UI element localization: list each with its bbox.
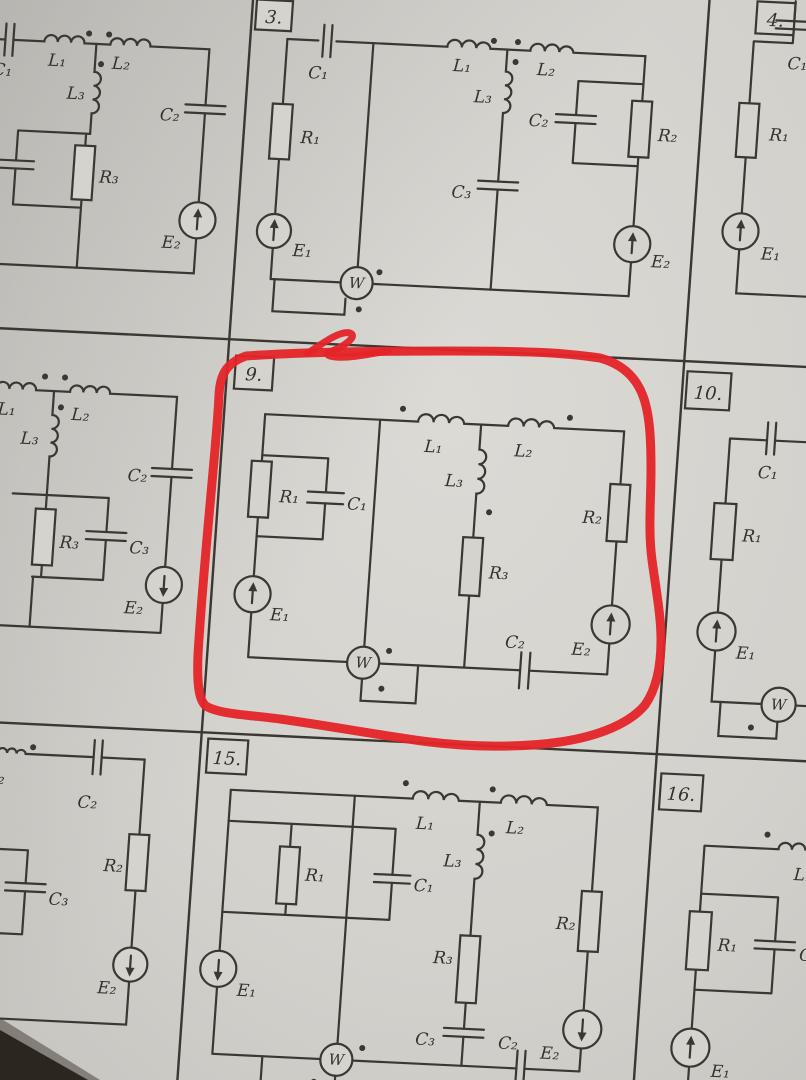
label-c2: C₂ — [159, 105, 180, 126]
source-e1 — [199, 950, 238, 988]
label-l1: L₁ — [451, 56, 471, 77]
source-e2 — [145, 566, 184, 604]
label-l3: L₃ — [443, 471, 464, 492]
label-e2: E₂ — [122, 598, 144, 619]
resistor-r1 — [686, 911, 712, 970]
label-c2: C₂ — [497, 1033, 518, 1054]
label-r3: R₃ — [487, 563, 509, 584]
label-r1: R₁ — [741, 526, 763, 547]
label-l2: L₂ — [504, 818, 525, 839]
source-e2 — [112, 947, 148, 983]
cell-number: 10. — [693, 383, 723, 405]
cell-number: 16. — [666, 784, 696, 806]
label-r3: R₃ — [431, 948, 453, 969]
label-l3: L₃ — [19, 429, 40, 450]
resistor-r2 — [628, 101, 652, 158]
label-c3: C₃ — [48, 889, 69, 910]
label-c1: C₁ — [798, 946, 806, 967]
label-e2: E₂ — [570, 640, 592, 661]
label-c2: C₂ — [127, 466, 148, 487]
resistor-r2 — [578, 891, 602, 952]
wattmeter-letter: W — [355, 653, 373, 672]
resistor-r1 — [276, 846, 300, 904]
wattmeter-letter: W — [348, 274, 366, 293]
label-l1: L₁ — [414, 814, 434, 835]
label-r2: R₂ — [554, 914, 576, 935]
label-e2: E₂ — [539, 1043, 561, 1064]
source-e2 — [178, 201, 217, 239]
resistor-r1 — [269, 104, 293, 160]
label-c1: C₁ — [413, 876, 434, 897]
resistor-r1 — [736, 103, 760, 158]
label-e1: E₁ — [734, 644, 756, 665]
label-r3: R₃ — [97, 167, 119, 188]
label-c3: C₃ — [415, 1030, 436, 1051]
label-e1: E₁ — [759, 244, 781, 265]
label-l1: L₁ — [46, 51, 66, 72]
label-e1: E₁ — [268, 605, 290, 626]
cell-number: 9. — [245, 364, 264, 386]
resistor-r3 — [459, 537, 483, 596]
cell-number: 15. — [212, 748, 242, 770]
label-c2: C₂ — [528, 111, 549, 132]
label-r1: R₁ — [716, 936, 738, 957]
resistor-r1 — [248, 461, 272, 518]
label-r1: R₁ — [278, 487, 300, 508]
label-l2: L₂ — [70, 405, 91, 426]
label-c1: C₁ — [346, 494, 367, 515]
label-r2: R₂ — [581, 508, 603, 529]
label-e1: E₁ — [291, 241, 313, 262]
label-c1: C₁ — [0, 60, 13, 81]
resistor-r2 — [125, 834, 149, 891]
label-r1: R₁ — [303, 866, 325, 887]
label-l1: L₁ — [792, 865, 806, 886]
cell-number: 3. — [265, 7, 284, 29]
label-r1: R₁ — [768, 125, 790, 146]
label-r2: R₂ — [102, 856, 124, 877]
label-l2: L₂ — [513, 441, 534, 462]
label-c3: C₃ — [129, 538, 150, 559]
resistor-r1 — [711, 503, 737, 560]
label-c1: C₁ — [787, 54, 806, 75]
label-l1: L₁ — [423, 437, 443, 458]
label-l3: L₃ — [472, 87, 493, 108]
label-e1: E₁ — [235, 981, 257, 1002]
resistor-r3 — [456, 935, 481, 1003]
label-e1: E₁ — [709, 1062, 731, 1080]
source-e1 — [256, 213, 292, 249]
wattmeter-letter: W — [328, 1050, 346, 1069]
label-e2: E₂ — [649, 252, 671, 273]
label-r1: R₁ — [299, 128, 321, 149]
photographed-worksheet: C₁ L₁ L₂ L₃ R₃ C₃ C₂ E₂ 3. — [0, 0, 806, 1080]
worksheet-svg: C₁ L₁ L₂ L₃ R₃ C₃ C₂ E₂ 3. — [0, 0, 806, 1080]
label-r3: R₃ — [58, 533, 80, 554]
label-c3: C₃ — [451, 182, 472, 203]
label-c1: C₁ — [307, 63, 328, 84]
resistor-r3 — [72, 145, 96, 200]
label-l3: L₃ — [442, 851, 463, 872]
label-e2: E₂ — [96, 978, 118, 999]
resistor-r3 — [32, 509, 56, 566]
label-c2: C₂ — [504, 632, 525, 653]
wattmeter-letter: W — [770, 695, 788, 714]
label-c2: C₂ — [77, 793, 98, 814]
label-l1: L₁ — [0, 399, 16, 420]
label-l2: L₂ — [110, 54, 131, 75]
source-e1 — [721, 212, 760, 250]
source-e1 — [233, 575, 272, 613]
label-r2: R₂ — [656, 126, 678, 147]
label-l3: L₃ — [65, 84, 86, 105]
label-e2: E₂ — [160, 233, 182, 254]
label-c1: C₁ — [757, 463, 778, 484]
resistor-r2 — [606, 484, 630, 542]
source-e2 — [613, 225, 652, 263]
label-l2: L₂ — [535, 60, 556, 81]
